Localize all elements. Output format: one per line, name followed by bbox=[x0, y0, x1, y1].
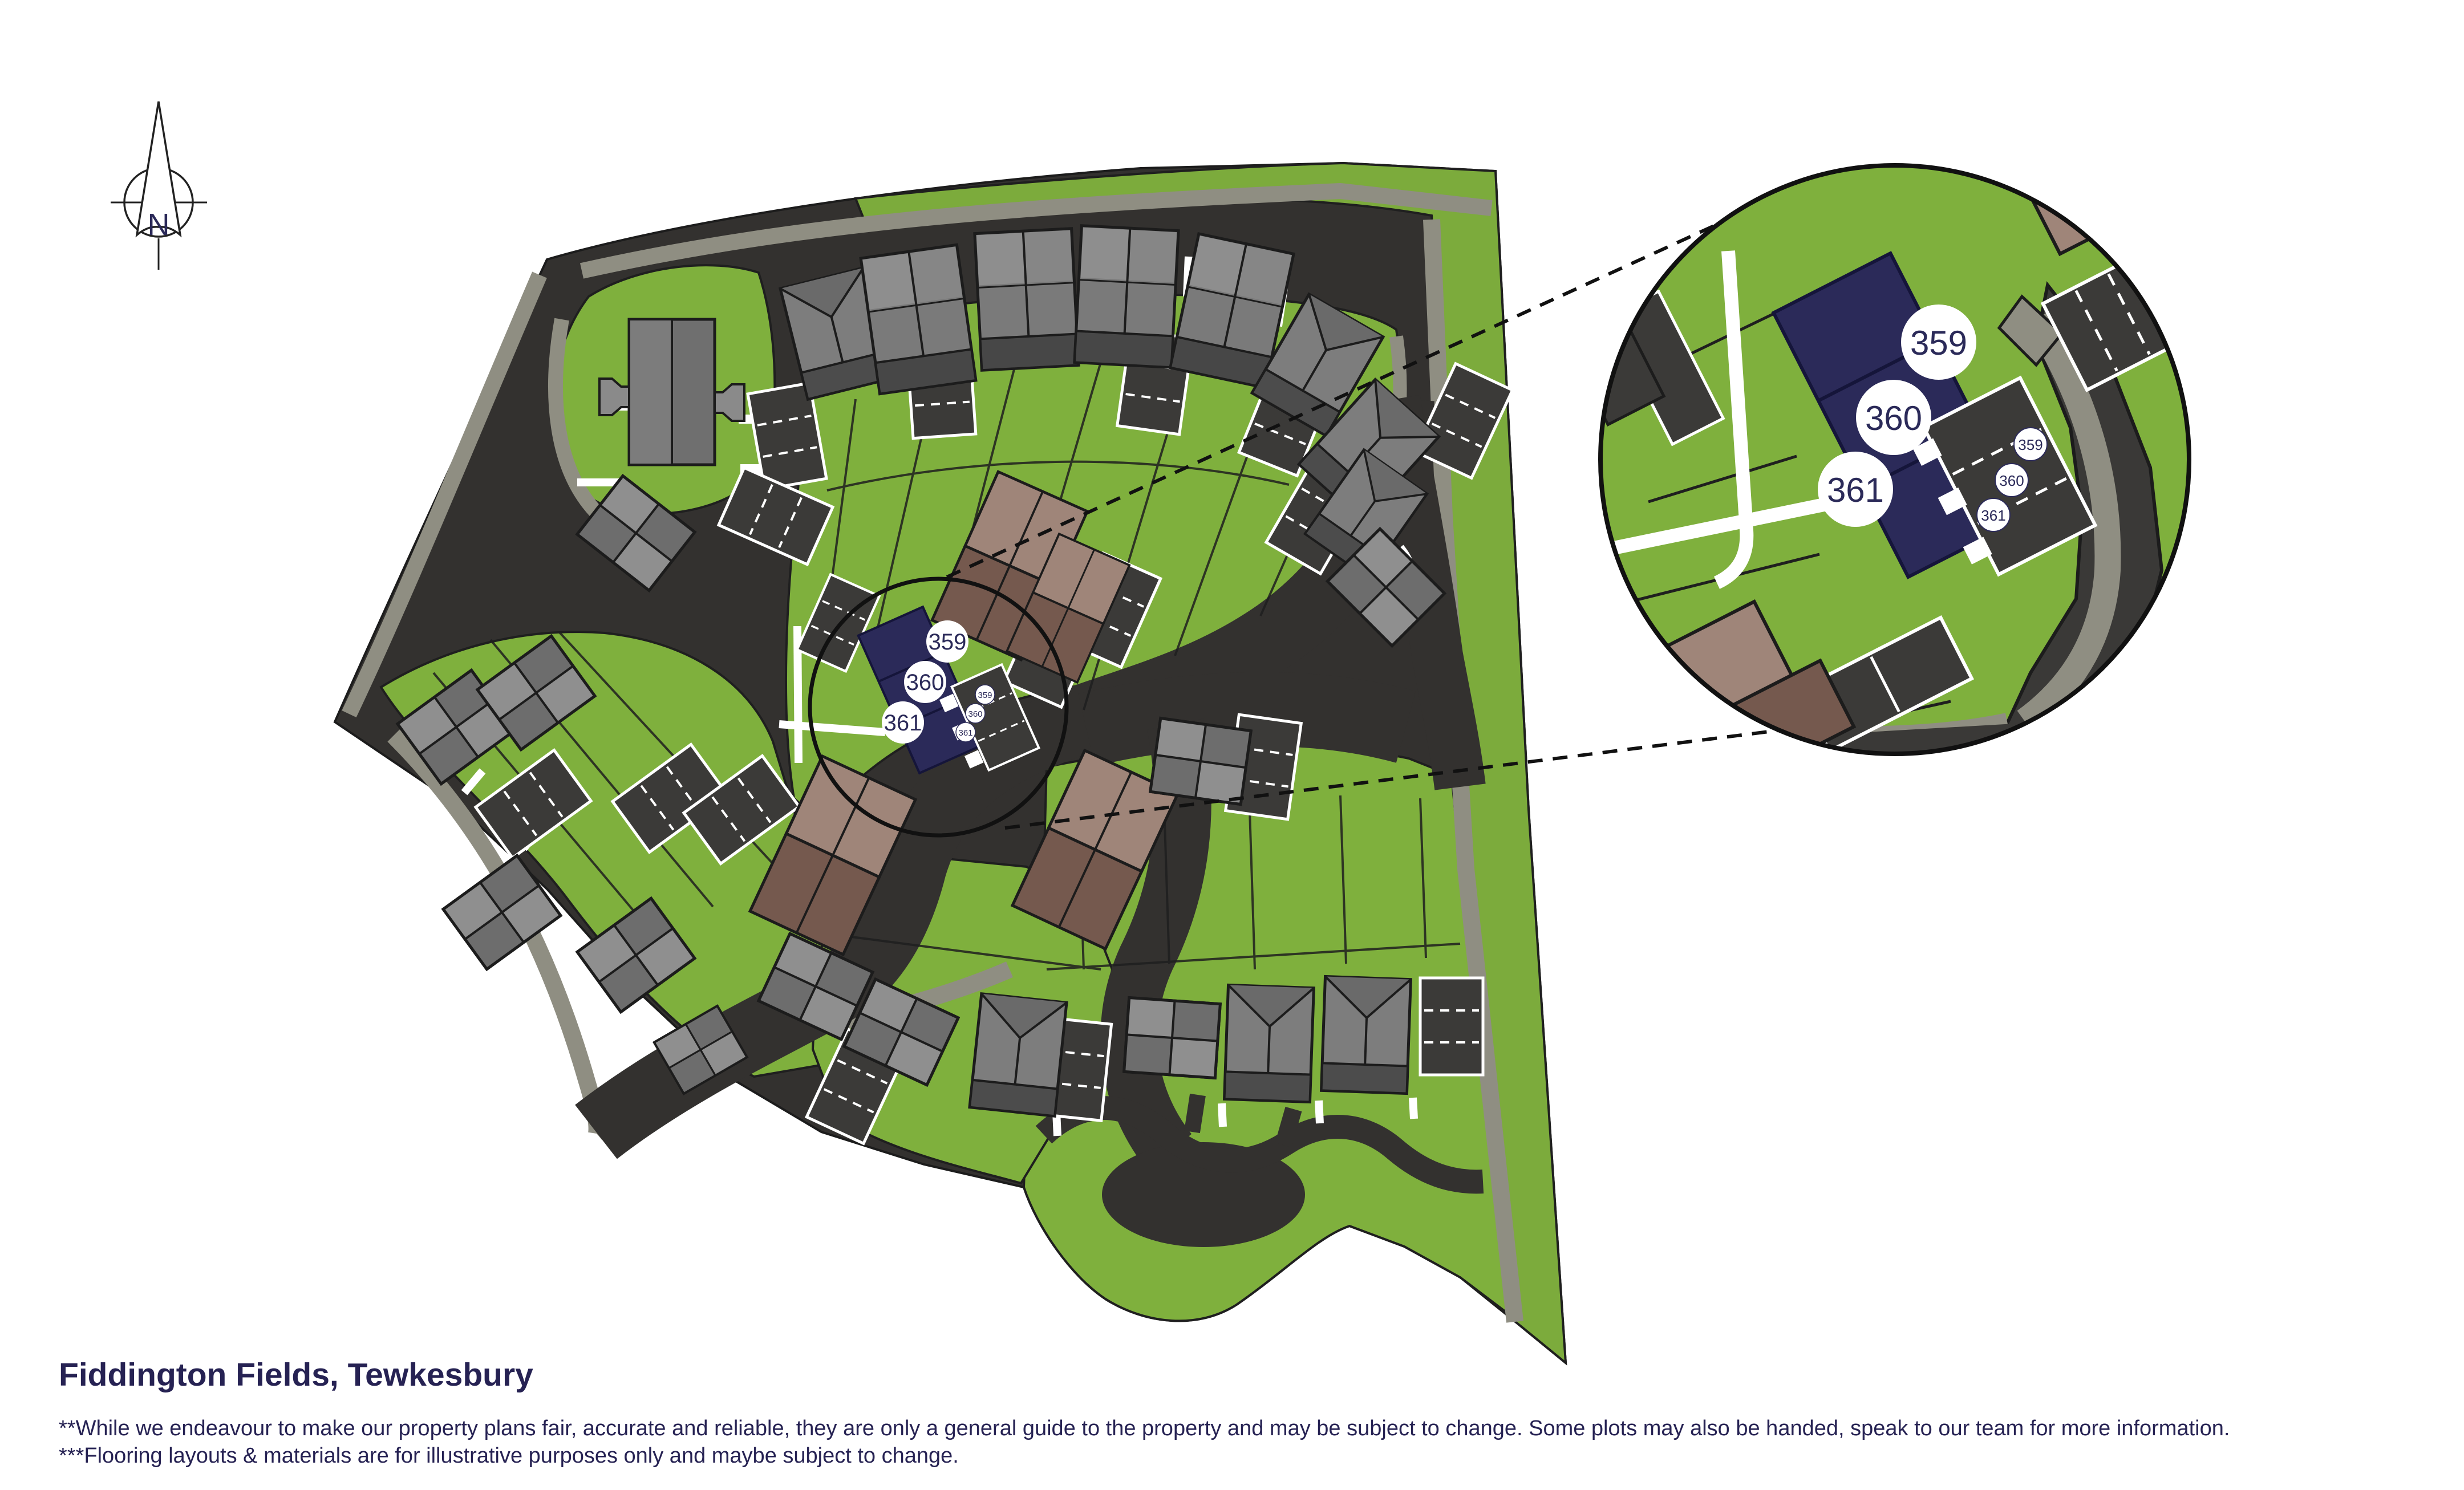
magnifier-inset: 359 360 361 359 360 361 bbox=[1559, 86, 2221, 770]
plot-marker-361-label: 361 bbox=[884, 711, 922, 736]
svg-text:359: 359 bbox=[978, 691, 992, 700]
compass-north-label: N bbox=[148, 208, 170, 242]
page-title: Fiddington Fields, Tewkesbury bbox=[59, 1356, 533, 1394]
svg-text:360: 360 bbox=[968, 709, 982, 719]
plot-marker-359-label: 359 bbox=[929, 630, 967, 655]
plot-marker-360-label: 360 bbox=[906, 670, 945, 695]
inset-parking-marker-360: 360 bbox=[1995, 464, 2028, 497]
disclaimer-line-2: ***Flooring layouts & materials are for … bbox=[59, 1444, 959, 1468]
site-plan-map: 359 360 361 359 360 361 bbox=[0, 0, 2464, 1490]
inset-parking-marker-361: 361 bbox=[1977, 498, 2010, 531]
parking-bay-marker-360: 360 bbox=[966, 704, 985, 723]
inset-plot-marker-361[interactable]: 361 bbox=[1818, 452, 1893, 527]
svg-text:361: 361 bbox=[1981, 507, 2005, 524]
svg-text:361: 361 bbox=[958, 728, 972, 738]
site-plan-page: 359 360 361 359 360 361 bbox=[0, 0, 2464, 1490]
svg-text:359: 359 bbox=[2018, 436, 2042, 453]
svg-text:359: 359 bbox=[1910, 324, 1967, 362]
disclaimer-line-1: **While we endeavour to make our propert… bbox=[59, 1416, 2230, 1441]
plot-marker-361[interactable]: 361 bbox=[882, 701, 924, 744]
north-compass-icon: N bbox=[111, 102, 207, 270]
svg-text:360: 360 bbox=[1865, 399, 1922, 437]
inset-plot-marker-359[interactable]: 359 bbox=[1901, 305, 1976, 380]
plot-marker-359[interactable]: 359 bbox=[926, 620, 968, 663]
svg-text:361: 361 bbox=[1827, 471, 1884, 509]
parking-bay-marker-359: 359 bbox=[975, 685, 995, 704]
svg-text:360: 360 bbox=[1999, 472, 2024, 489]
parking-bay-marker-361: 361 bbox=[956, 722, 975, 742]
plot-marker-360[interactable]: 360 bbox=[904, 661, 946, 703]
inset-plot-marker-360[interactable]: 360 bbox=[1856, 380, 1931, 455]
inset-parking-marker-359: 359 bbox=[2014, 428, 2047, 461]
